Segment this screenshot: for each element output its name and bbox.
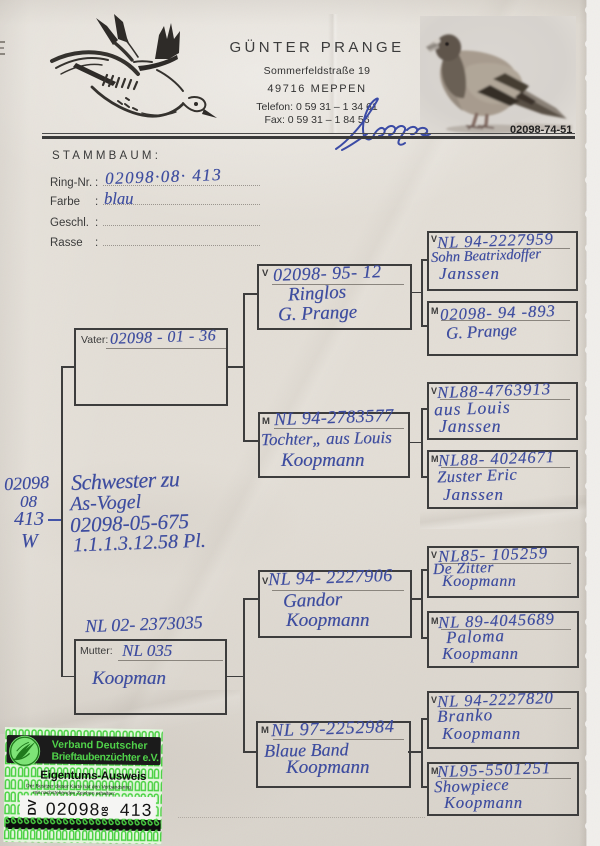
svg-text:DV: DV [27,799,39,815]
svg-text:413: 413 [120,800,153,820]
svg-text:02098: 02098 [46,799,101,820]
svg-text:Brieftaubenzüchter e.V.: Brieftaubenzüchter e.V. [52,751,160,765]
svg-text:08: 08 [100,806,110,816]
svg-text:Eigentums-Ausweis: Eigentums-Ausweis [40,769,146,782]
